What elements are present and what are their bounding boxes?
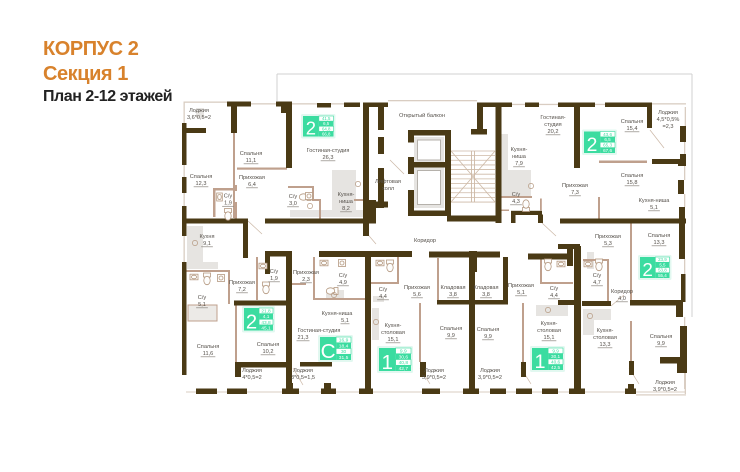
svg-text:42,7: 42,7 <box>399 366 409 372</box>
svg-text:Прихожая: Прихожая <box>562 183 588 189</box>
svg-text:12,3: 12,3 <box>196 181 207 187</box>
svg-text:66,8: 66,8 <box>322 131 331 136</box>
svg-text:Спальня: Спальня <box>621 119 643 125</box>
svg-text:Кладовая: Кладовая <box>473 285 498 291</box>
svg-text:холл: холл <box>382 186 394 192</box>
svg-text:11,1: 11,1 <box>246 158 256 164</box>
svg-text:студия: студия <box>544 122 561 128</box>
svg-text:Гостиная-студия: Гостиная-студия <box>307 148 350 154</box>
svg-text:Спальня: Спальня <box>650 334 672 340</box>
svg-text:21,3: 21,3 <box>298 335 309 341</box>
svg-text:2: 2 <box>587 134 598 156</box>
svg-text:5,5: 5,5 <box>659 262 666 267</box>
svg-text:Спальня: Спальня <box>257 342 279 348</box>
svg-text:30,1: 30,1 <box>551 354 560 359</box>
svg-text:Спальня: Спальня <box>197 344 219 350</box>
svg-text:Коридор: Коридор <box>611 289 633 295</box>
svg-text:4*0,5=2: 4*0,5=2 <box>242 375 261 381</box>
svg-text:С: С <box>321 340 336 363</box>
svg-text:Открытый балкон: Открытый балкон <box>399 112 445 119</box>
svg-text:Лифтовая: Лифтовая <box>375 179 401 185</box>
svg-text:9,9: 9,9 <box>447 333 455 339</box>
svg-text:9,9: 9,9 <box>552 348 559 353</box>
svg-text:Лоджия: Лоджия <box>655 380 675 386</box>
svg-text:6,5: 6,5 <box>604 137 611 142</box>
svg-text:Кухня-: Кухня- <box>541 321 558 327</box>
svg-text:4,0: 4,0 <box>618 296 626 302</box>
svg-text:Кухня-: Кухня- <box>597 328 614 334</box>
svg-text:Спальня: Спальня <box>477 327 499 333</box>
svg-text:1,9: 1,9 <box>224 201 232 207</box>
svg-text:5,1: 5,1 <box>198 302 206 308</box>
svg-text:7,2: 7,2 <box>238 287 246 293</box>
svg-text:13,3: 13,3 <box>600 342 611 348</box>
svg-text:1: 1 <box>535 351 546 373</box>
svg-text:4,4: 4,4 <box>550 293 558 299</box>
svg-text:Лоджия: Лоджия <box>293 368 313 374</box>
svg-text:Спальня: Спальня <box>190 174 212 180</box>
svg-text:С/у: С/у <box>379 287 388 293</box>
svg-text:1: 1 <box>382 351 394 374</box>
svg-text:23,9: 23,9 <box>658 257 667 262</box>
svg-text:С/у: С/у <box>198 295 207 301</box>
svg-text:С/у: С/у <box>270 269 279 275</box>
svg-text:5,6: 5,6 <box>413 292 421 298</box>
svg-text:3*0,5=1,5: 3*0,5=1,5 <box>291 375 315 381</box>
svg-text:9,9: 9,9 <box>484 334 492 340</box>
svg-text:столовая: столовая <box>537 328 561 334</box>
svg-text:Кухня-ниша: Кухня-ниша <box>639 198 671 204</box>
svg-text:15,1: 15,1 <box>388 337 399 343</box>
svg-text:Прихожая: Прихожая <box>595 234 621 240</box>
svg-text:8,2: 8,2 <box>342 206 350 212</box>
svg-text:Гостиная-студия: Гостиная-студия <box>298 328 341 334</box>
svg-text:20,2: 20,2 <box>548 129 559 135</box>
svg-text:С/у: С/у <box>339 273 348 279</box>
svg-text:9,1: 9,1 <box>203 241 211 247</box>
svg-text:С/у: С/у <box>289 194 298 200</box>
svg-text:столовая: столовая <box>381 330 405 336</box>
svg-text:Кухня-: Кухня- <box>385 323 402 329</box>
svg-text:5,1: 5,1 <box>517 290 525 296</box>
svg-text:4,9: 4,9 <box>339 280 347 286</box>
svg-text:15,8: 15,8 <box>627 180 638 186</box>
svg-text:31,5: 31,5 <box>339 355 349 361</box>
svg-text:С/у: С/у <box>550 286 559 292</box>
svg-text:Прихожая: Прихожая <box>229 280 255 286</box>
svg-text:Прихожая: Прихожая <box>239 175 265 181</box>
svg-text:Спальня: Спальня <box>648 233 670 239</box>
svg-text:5,1: 5,1 <box>341 318 349 324</box>
svg-text:Кухня-: Кухня- <box>338 192 355 198</box>
svg-text:2: 2 <box>306 117 316 138</box>
svg-text:53,8: 53,8 <box>658 268 667 273</box>
svg-text:3,9*0,5=2: 3,9*0,5=2 <box>422 375 446 381</box>
svg-text:6,4: 6,4 <box>248 182 256 188</box>
svg-text:42,5: 42,5 <box>551 365 560 370</box>
svg-text:Прихожая: Прихожая <box>404 285 430 291</box>
svg-text:15,1: 15,1 <box>544 335 555 341</box>
svg-text:65,3: 65,3 <box>603 143 612 148</box>
svg-text:С/у: С/у <box>224 194 233 200</box>
svg-text:2,3: 2,3 <box>302 277 310 283</box>
svg-text:7,3: 7,3 <box>571 190 579 196</box>
svg-text:7,9: 7,9 <box>515 161 523 167</box>
svg-text:Коридор: Коридор <box>414 238 436 244</box>
svg-text:1,9: 1,9 <box>270 276 278 282</box>
svg-text:40,6: 40,6 <box>551 359 560 364</box>
svg-text:С/у: С/у <box>593 273 602 279</box>
svg-text:45,1: 45,1 <box>261 325 271 331</box>
svg-text:4,4: 4,4 <box>379 294 387 300</box>
svg-text:Кухня-: Кухня- <box>511 147 528 153</box>
svg-text:3,9*0,5=2: 3,9*0,5=2 <box>653 387 677 393</box>
svg-text:Спальня: Спальня <box>240 151 262 157</box>
svg-text:=2,3: =2,3 <box>662 124 673 130</box>
svg-text:Кухня: Кухня <box>200 234 215 240</box>
svg-text:5,3: 5,3 <box>604 241 612 247</box>
svg-text:Лоджия: Лоджия <box>242 368 262 374</box>
svg-text:67,6: 67,6 <box>603 148 612 153</box>
svg-text:Лоджия: Лоджия <box>480 368 500 374</box>
svg-text:Прихожая: Прихожая <box>293 270 319 276</box>
svg-text:Лоджия: Лоджия <box>424 368 444 374</box>
svg-text:2: 2 <box>246 311 257 333</box>
svg-text:3,8: 3,8 <box>449 292 457 298</box>
svg-text:Спальня: Спальня <box>621 173 643 179</box>
svg-text:3,9*0,5=2: 3,9*0,5=2 <box>478 375 502 381</box>
svg-text:ниша: ниша <box>512 154 527 160</box>
svg-text:3,6*0,5=2: 3,6*0,5=2 <box>187 115 211 121</box>
svg-text:15,4: 15,4 <box>627 126 638 132</box>
svg-text:Лоджия: Лоджия <box>658 110 678 116</box>
svg-text:Кухня-ниша: Кухня-ниша <box>322 311 354 317</box>
svg-text:Лоджия: Лоджия <box>189 108 209 114</box>
svg-text:ниша: ниша <box>339 199 354 205</box>
svg-text:26,3: 26,3 <box>323 155 334 161</box>
svg-text:9,9: 9,9 <box>657 341 665 347</box>
svg-text:55,4: 55,4 <box>658 273 667 278</box>
svg-text:5,1: 5,1 <box>650 205 658 211</box>
svg-text:4,7: 4,7 <box>593 280 601 286</box>
svg-text:10,2: 10,2 <box>263 349 274 355</box>
svg-text:2: 2 <box>642 260 653 281</box>
svg-text:4,3: 4,3 <box>512 199 520 205</box>
svg-text:43,6: 43,6 <box>603 132 612 137</box>
svg-text:3,0: 3,0 <box>289 201 297 207</box>
svg-text:4,5*0,5%: 4,5*0,5% <box>657 117 680 123</box>
svg-text:Прихожая: Прихожая <box>508 283 534 289</box>
svg-text:С/у: С/у <box>512 192 521 198</box>
svg-text:Спальня: Спальня <box>440 326 462 332</box>
svg-text:13,3: 13,3 <box>654 240 665 246</box>
svg-text:11,6: 11,6 <box>203 351 213 357</box>
svg-text:Гостиная-: Гостиная- <box>540 115 565 121</box>
svg-text:Кладовая: Кладовая <box>440 285 465 291</box>
svg-text:3,8: 3,8 <box>482 292 490 298</box>
svg-text:столовая: столовая <box>593 335 617 341</box>
